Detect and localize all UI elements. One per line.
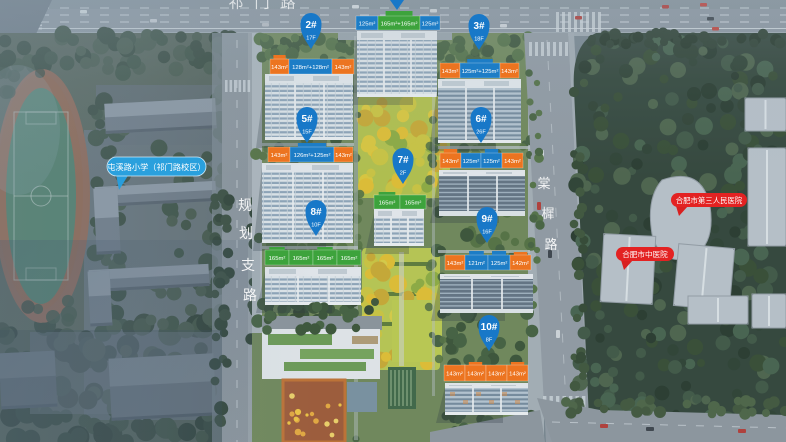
svg-text:143m²: 143m² — [271, 153, 288, 159]
svg-text:126m²+125m²: 126m²+125m² — [294, 153, 331, 159]
svg-text:142m²: 142m² — [512, 261, 529, 267]
svg-text:规: 规 — [238, 197, 252, 213]
svg-text:165m²+165m²: 165m²+165m² — [381, 21, 418, 27]
svg-text:支: 支 — [241, 257, 255, 273]
svg-text:143m²: 143m² — [501, 69, 518, 75]
svg-text:143m²: 143m² — [467, 371, 484, 377]
svg-text:6#: 6# — [475, 114, 487, 125]
svg-text:26F: 26F — [476, 130, 486, 136]
svg-text:125m²: 125m² — [359, 21, 376, 27]
svg-text:5#: 5# — [301, 114, 313, 125]
svg-text:9#: 9# — [481, 214, 493, 225]
svg-text:棠: 棠 — [537, 176, 550, 191]
svg-text:165m²: 165m² — [317, 256, 334, 262]
svg-text:143m²: 143m² — [442, 159, 459, 165]
svg-text:路: 路 — [280, 0, 295, 12]
svg-text:143m²: 143m² — [335, 153, 352, 159]
svg-text:125m²: 125m² — [491, 261, 508, 267]
svg-text:165m²: 165m² — [269, 256, 286, 262]
svg-text:121m²: 121m² — [468, 261, 485, 267]
svg-text:125m²: 125m² — [463, 159, 480, 165]
svg-text:10F: 10F — [311, 223, 321, 229]
svg-text:合肥市第三人民医院: 合肥市第三人民医院 — [676, 196, 743, 205]
svg-text:划: 划 — [239, 225, 253, 241]
svg-text:8#: 8# — [310, 207, 322, 218]
svg-text:17F: 17F — [306, 36, 316, 42]
svg-text:樨: 樨 — [541, 206, 554, 221]
svg-text:路: 路 — [544, 237, 557, 252]
svg-text:屯溪路小学（祁门路校区）: 屯溪路小学（祁门路校区） — [107, 162, 205, 172]
svg-text:125m²: 125m² — [422, 21, 439, 27]
svg-text:8F: 8F — [486, 338, 493, 344]
svg-text:路: 路 — [243, 287, 257, 303]
svg-text:2F: 2F — [400, 171, 407, 177]
svg-text:143m²: 143m² — [504, 159, 521, 165]
svg-text:7#: 7# — [397, 155, 409, 166]
svg-text:15F: 15F — [302, 130, 312, 136]
svg-text:143m²: 143m² — [335, 65, 352, 71]
svg-text:16F: 16F — [482, 230, 492, 236]
svg-text:祁: 祁 — [228, 0, 243, 12]
svg-text:165m²: 165m² — [405, 200, 422, 206]
svg-text:2#: 2# — [305, 20, 317, 31]
svg-text:18F: 18F — [474, 37, 484, 43]
svg-text:143m²: 143m² — [442, 69, 459, 75]
svg-text:合肥市中医院: 合肥市中医院 — [622, 249, 668, 259]
svg-text:165m²: 165m² — [379, 200, 396, 206]
svg-text:143m²: 143m² — [271, 65, 288, 71]
svg-text:10#: 10# — [481, 322, 498, 333]
svg-text:165m²: 165m² — [293, 256, 310, 262]
svg-text:143m²: 143m² — [488, 371, 505, 377]
svg-text:门: 门 — [254, 0, 269, 12]
svg-text:125m²+125m²: 125m²+125m² — [462, 69, 499, 75]
svg-text:143m²: 143m² — [447, 261, 464, 267]
svg-text:143m²: 143m² — [509, 371, 526, 377]
svg-text:128m²+128m²: 128m²+128m² — [292, 65, 329, 71]
svg-text:165m²: 165m² — [341, 256, 358, 262]
svg-text:3#: 3# — [473, 21, 485, 32]
svg-text:125m²: 125m² — [483, 159, 500, 165]
svg-text:143m²: 143m² — [446, 371, 463, 377]
